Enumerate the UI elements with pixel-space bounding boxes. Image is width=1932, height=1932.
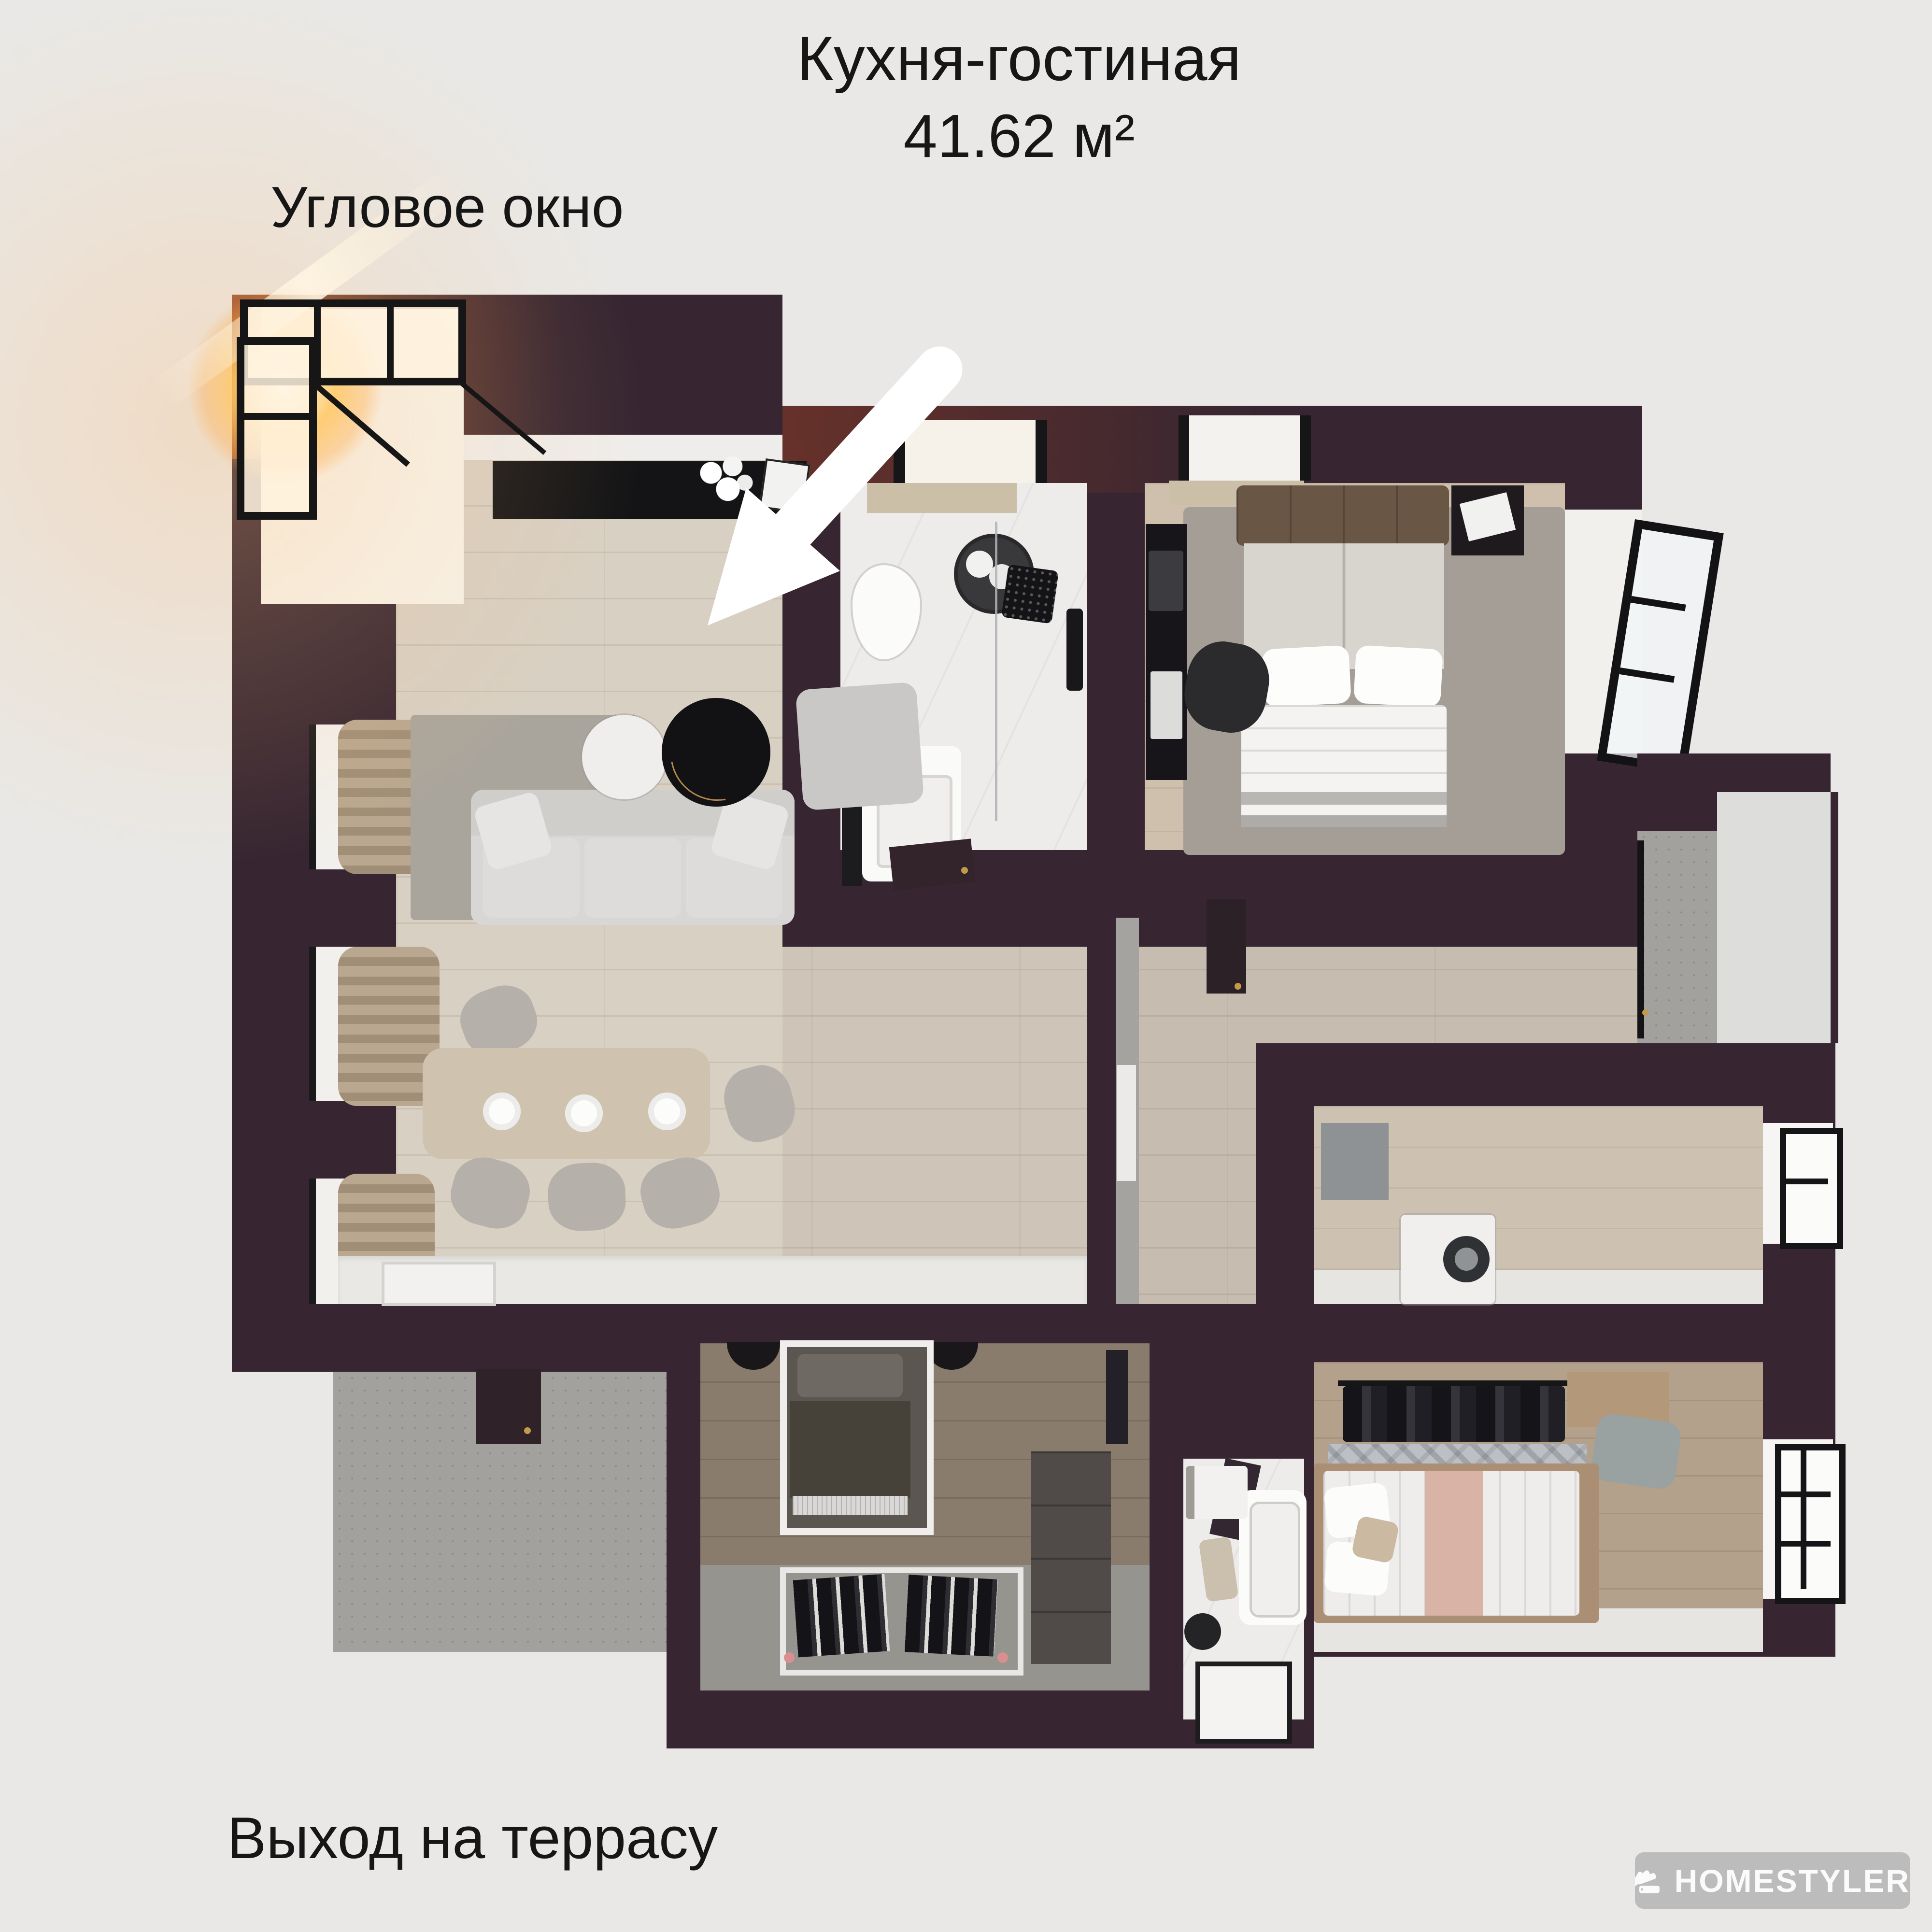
annotation-arrow <box>708 369 939 625</box>
corner-window-frame <box>241 303 545 516</box>
title-line-1: Кухня-гостиная <box>536 19 1502 98</box>
watermark-text: HOMESTYLER <box>1675 1862 1910 1899</box>
page-title: Кухня-гостиная 41.62 м² <box>536 19 1502 174</box>
title-line-2: 41.62 м² <box>536 98 1502 174</box>
floor-plan-render: Кухня-гостиная 41.62 м² Угловое окно Вых… <box>0 0 1932 1932</box>
homestyler-fan-icon <box>1635 1859 1666 1903</box>
overlay-graphics <box>0 0 1932 1932</box>
label-terrace-exit: Выход на террасу <box>227 1804 718 1872</box>
homestyler-watermark: HOMESTYLER <box>1635 1852 1910 1909</box>
label-corner-window: Угловое окно <box>270 174 624 241</box>
